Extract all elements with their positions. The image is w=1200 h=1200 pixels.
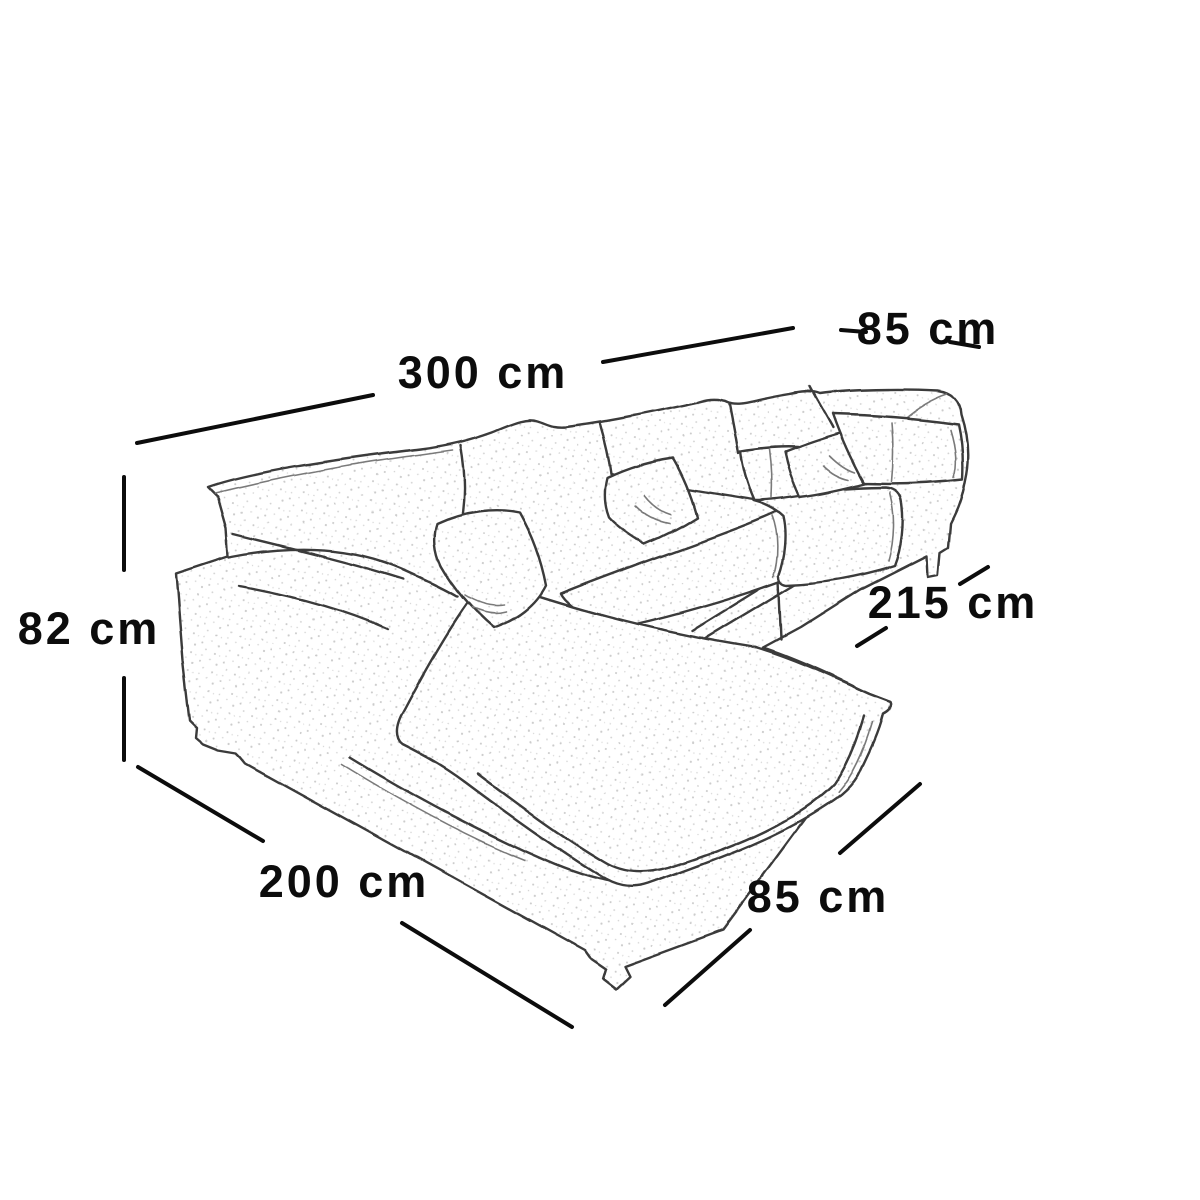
sofa-dimension-diagram: 300 cm 85 cm 82 cm 215 cm 200 cm 85 cm <box>0 0 1200 1200</box>
dimension-back-width-line-b <box>603 328 793 362</box>
dimension-back-width-label: 300 cm <box>398 347 569 398</box>
dimension-right-arm-depth-label: 85 cm <box>857 303 1000 354</box>
dimension-seat-height-label: 82 cm <box>18 603 161 654</box>
dimension-front-depth-line-a <box>840 784 920 853</box>
dimension-right-side-length-line-b <box>857 628 886 646</box>
dimension-right-side-length-label: 215 cm <box>868 577 1039 628</box>
dimension-front-depth-label: 85 cm <box>747 871 890 922</box>
diagram-svg: 300 cm 85 cm 82 cm 215 cm 200 cm 85 cm <box>0 0 1200 1200</box>
dimension-right-side-length: 215 cm <box>857 567 1038 646</box>
dimension-chaise-side-length-line-a <box>138 767 263 841</box>
dimension-back-width-line-a <box>137 395 373 443</box>
dimension-chaise-side-length-label: 200 cm <box>259 856 430 907</box>
dimension-seat-height: 82 cm <box>18 477 161 760</box>
dimension-right-arm-depth: 85 cm <box>841 303 999 354</box>
dimension-chaise-side-length-line-b <box>402 923 572 1027</box>
